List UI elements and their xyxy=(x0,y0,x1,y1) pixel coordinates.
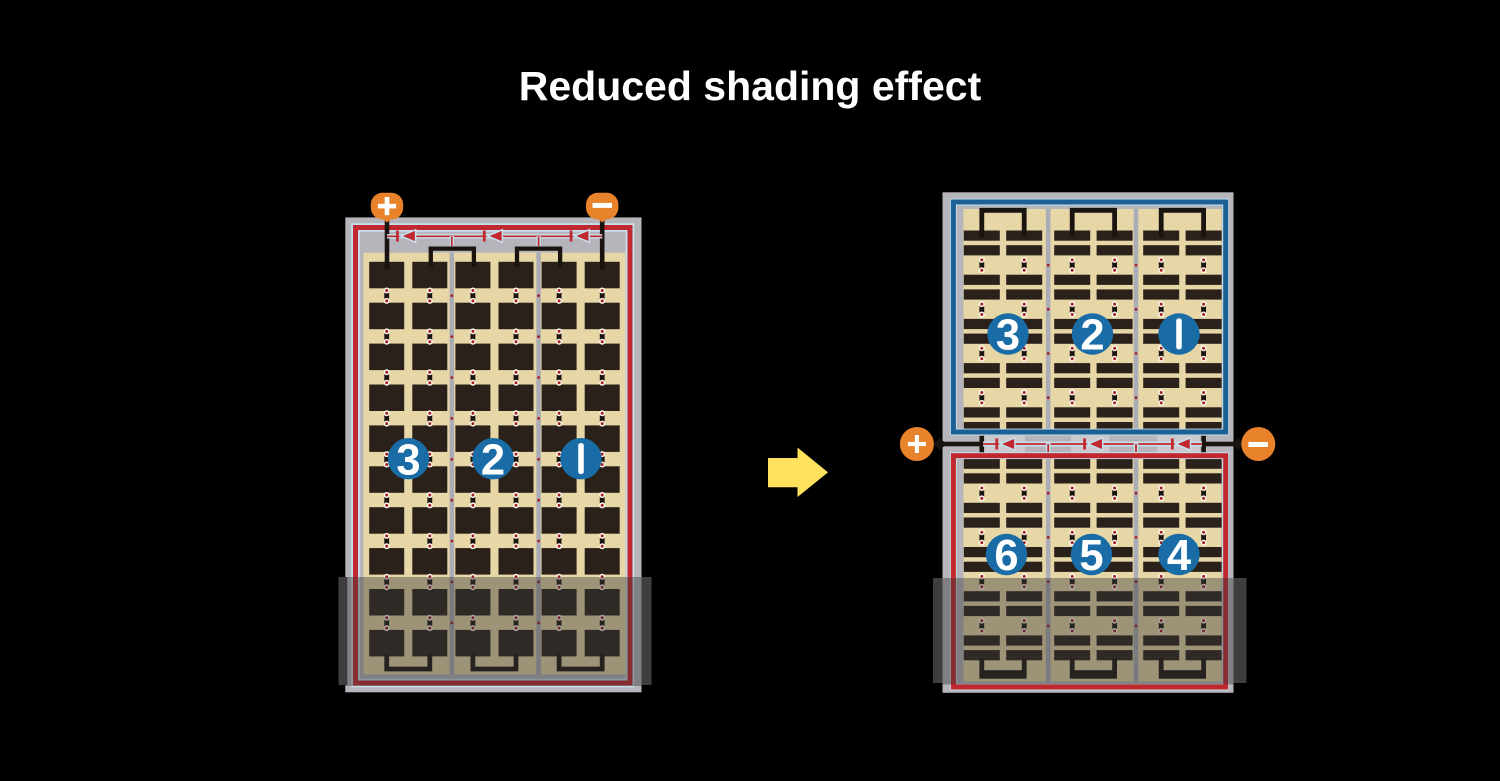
svg-text:2: 2 xyxy=(1080,312,1104,360)
svg-text:6: 6 xyxy=(994,532,1018,580)
svg-text:3: 3 xyxy=(996,312,1020,360)
svg-text:4: 4 xyxy=(1167,532,1191,580)
svg-text:3: 3 xyxy=(396,436,420,484)
svg-text:Reduced shading effect: Reduced shading effect xyxy=(519,63,982,109)
svg-text:5: 5 xyxy=(1079,532,1103,580)
svg-text:2: 2 xyxy=(481,436,505,484)
